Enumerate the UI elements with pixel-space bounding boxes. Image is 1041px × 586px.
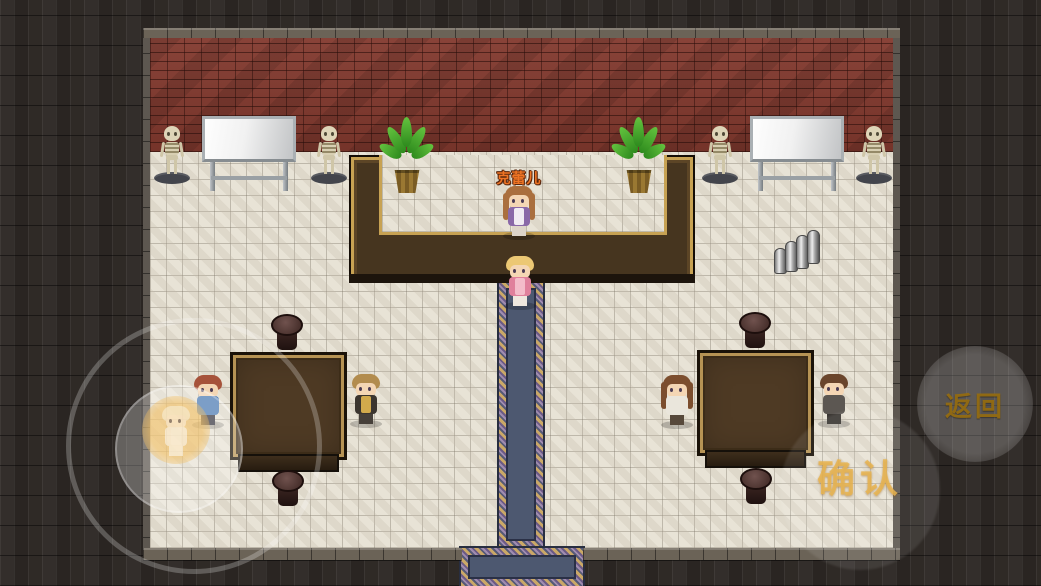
confirm-button[interactable]: 确认 [785,448,935,503]
back-button[interactable]: 返回 [917,346,1033,462]
top-wall-stone-cap [143,28,900,38]
whiteboard [750,116,844,192]
joystick-ghost-avatar [158,406,194,458]
metal-cans [774,230,824,276]
game-screen: 克蕾儿 [0,0,1041,586]
npc-name-label: 克蕾儿 [459,168,579,188]
skeleton-statue [154,124,190,184]
player-character [502,256,538,308]
skeleton-statue [311,124,347,184]
skeleton-statue [856,124,892,184]
seated-npc-right-table-west[interactable] [659,375,695,427]
stool [739,468,773,508]
seated-npc-left-table-east[interactable] [348,374,384,426]
whiteboard [202,116,296,192]
bartender[interactable] [501,186,537,238]
skeleton-statue [702,124,738,184]
carpet-runner [499,281,543,548]
potted-plant [386,115,428,193]
potted-plant [618,115,660,193]
carpet-doorway-south [461,548,583,586]
stool [738,312,772,352]
